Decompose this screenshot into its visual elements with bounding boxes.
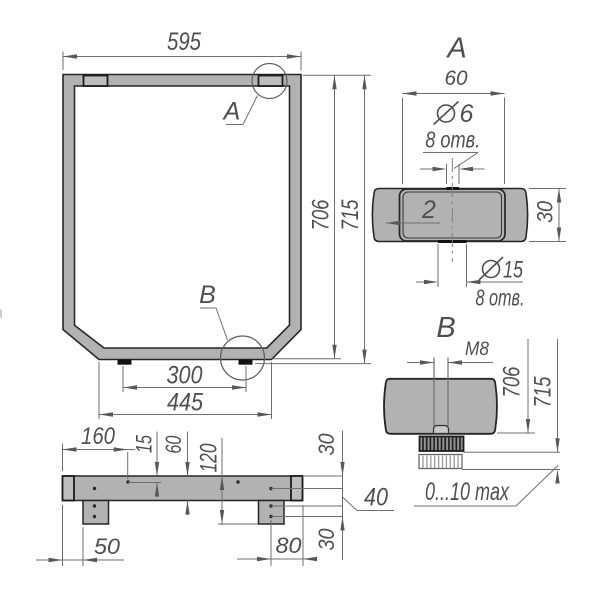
svg-text:15: 15 <box>132 434 157 453</box>
svg-text:300: 300 <box>167 362 203 390</box>
svg-text:40: 40 <box>364 484 388 512</box>
svg-text:30: 30 <box>314 433 339 456</box>
svg-text:120: 120 <box>196 443 223 472</box>
svg-text:60: 60 <box>445 67 468 90</box>
svg-text:80: 80 <box>276 533 303 558</box>
svg-text:715: 715 <box>530 376 557 408</box>
svg-text:B: B <box>436 312 455 344</box>
svg-text:B: B <box>199 281 216 309</box>
svg-text:30: 30 <box>533 200 558 223</box>
svg-text:M8: M8 <box>465 339 489 360</box>
svg-text:6: 6 <box>460 100 474 128</box>
svg-text:50: 50 <box>94 534 121 559</box>
svg-text:60: 60 <box>161 435 186 454</box>
svg-text:706: 706 <box>499 366 526 398</box>
svg-text:30: 30 <box>314 528 339 551</box>
svg-text:0...10 max: 0...10 max <box>425 478 510 506</box>
svg-text:15: 15 <box>503 257 523 284</box>
svg-text:706: 706 <box>308 199 335 231</box>
svg-text:8 отв.: 8 отв. <box>476 285 525 311</box>
svg-text:A: A <box>222 98 241 126</box>
svg-text:160: 160 <box>81 423 116 450</box>
svg-text:A: A <box>445 33 466 65</box>
svg-text:8 отв.: 8 отв. <box>425 127 480 153</box>
svg-text:445: 445 <box>167 389 203 417</box>
svg-text:2: 2 <box>421 196 436 224</box>
svg-text:595: 595 <box>167 28 201 56</box>
svg-text:715: 715 <box>337 199 364 231</box>
